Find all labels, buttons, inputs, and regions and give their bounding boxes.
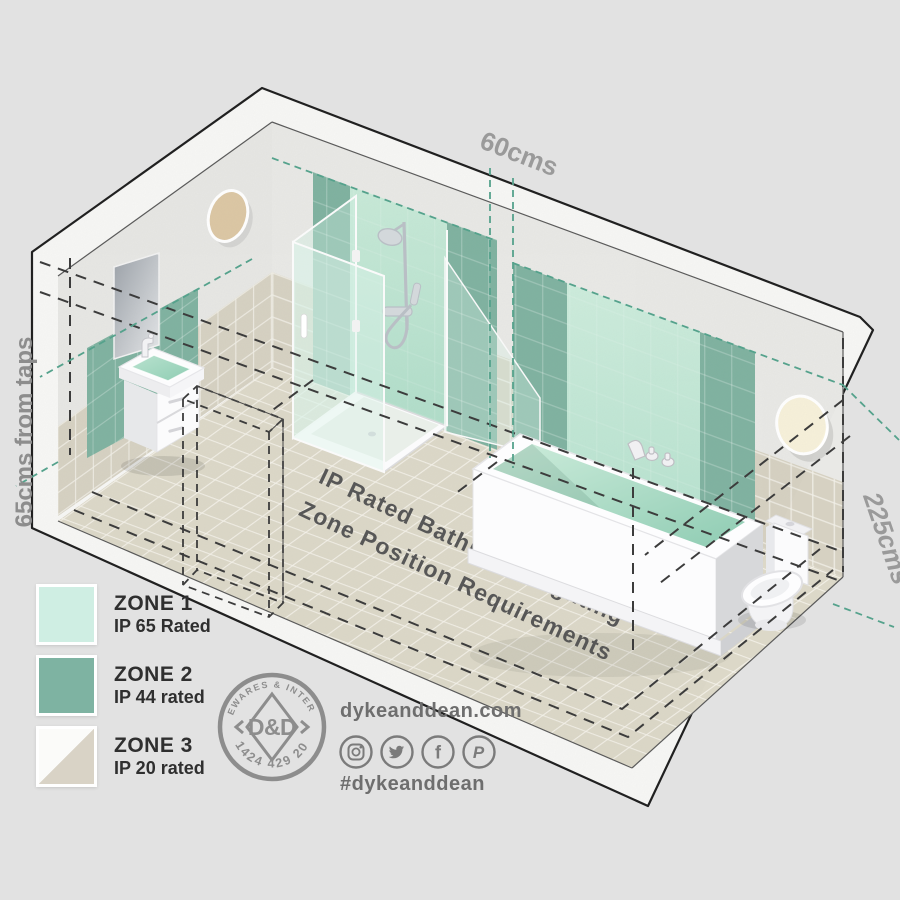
legend-row-zone1: ZONE 1 IP 65 Rated: [36, 586, 211, 643]
zone2-name: ZONE 2: [114, 663, 205, 687]
zone3-swatch: [36, 726, 97, 787]
twitter-icon: [382, 737, 413, 768]
facebook-glyph: f: [435, 743, 442, 763]
pinterest-glyph: P: [473, 743, 485, 762]
social-icons: f P: [341, 737, 495, 768]
zone2-rating: IP 44 rated: [114, 687, 205, 709]
dimension-label-right: 225cms: [857, 491, 900, 586]
zone1-swatch: [36, 584, 97, 645]
facebook-icon: f: [423, 737, 454, 768]
footer-brand-links: dykeanddean.com f P #dykeanddean: [340, 700, 522, 795]
infographic-canvas: IP Rated Bathroom Lighting Zone Position…: [0, 0, 900, 900]
instagram-icon: [341, 737, 372, 768]
toilet-flush-button: [786, 522, 795, 526]
dimension-label-top: 60cms: [476, 125, 562, 182]
legend-row-zone3: ZONE 3 IP 20 rated: [36, 728, 211, 785]
badge-monogram: D&D: [248, 714, 296, 740]
zone1-name: ZONE 1: [114, 592, 211, 616]
zone3-name: ZONE 3: [114, 734, 205, 758]
dimension-label-left: 65cms from taps: [11, 337, 38, 528]
zone3-rating: IP 20 rated: [114, 758, 205, 780]
hashtag-text: #dykeanddean: [340, 773, 485, 795]
badge-left-chevron-icon: [236, 721, 243, 733]
shower-door-handle: [301, 314, 307, 338]
pinterest-icon: P: [464, 737, 495, 768]
brand-badge: HOMEWARES & INTERIORS 01424 429 202 D&D: [220, 675, 324, 779]
legend: ZONE 1 IP 65 Rated ZONE 2 IP 44 rated ZO…: [36, 586, 211, 799]
zone1-rating: IP 65 Rated: [114, 616, 211, 638]
legend-row-zone2: ZONE 2 IP 44 rated: [36, 657, 211, 714]
badge-right-chevron-icon: [301, 721, 308, 733]
zone2-swatch: [36, 655, 97, 716]
website-text: dykeanddean.com: [340, 700, 522, 722]
